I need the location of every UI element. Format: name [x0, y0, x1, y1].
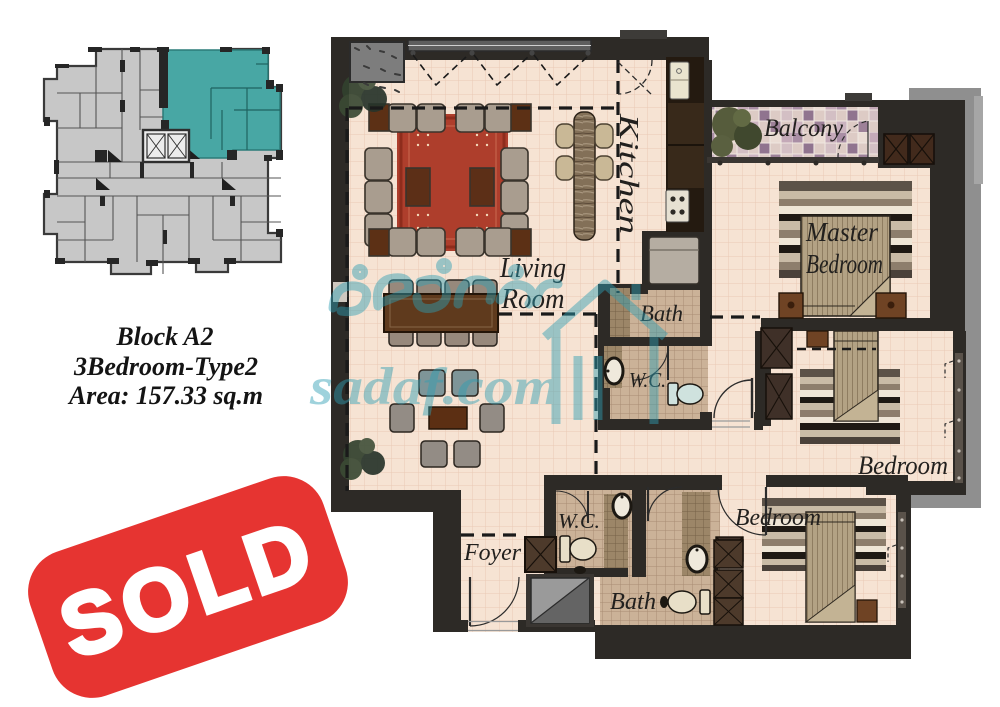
svg-text:Bedroom: Bedroom [735, 505, 821, 531]
svg-text:Foyer: Foyer [463, 540, 522, 566]
svg-text:Bedroom: Bedroom [806, 249, 883, 279]
svg-text:sadaf.com: sadaf.com [309, 358, 560, 416]
svg-text:W.C.: W.C. [558, 509, 600, 533]
svg-text:Balcony: Balcony [764, 115, 844, 142]
svg-text:Kitchen: Kitchen [614, 113, 644, 234]
svg-text:Block A2: Block A2 [116, 322, 214, 351]
svg-text:Bedroom: Bedroom [858, 451, 948, 480]
svg-text:3Bedroom-Type2: 3Bedroom-Type2 [73, 352, 258, 381]
svg-text:Bath: Bath [610, 589, 656, 615]
svg-text:W.C.: W.C. [629, 368, 666, 392]
svg-text:Master: Master [805, 217, 878, 247]
svg-text:Area: 157.33 sq.m: Area: 157.33 sq.m [67, 381, 263, 410]
